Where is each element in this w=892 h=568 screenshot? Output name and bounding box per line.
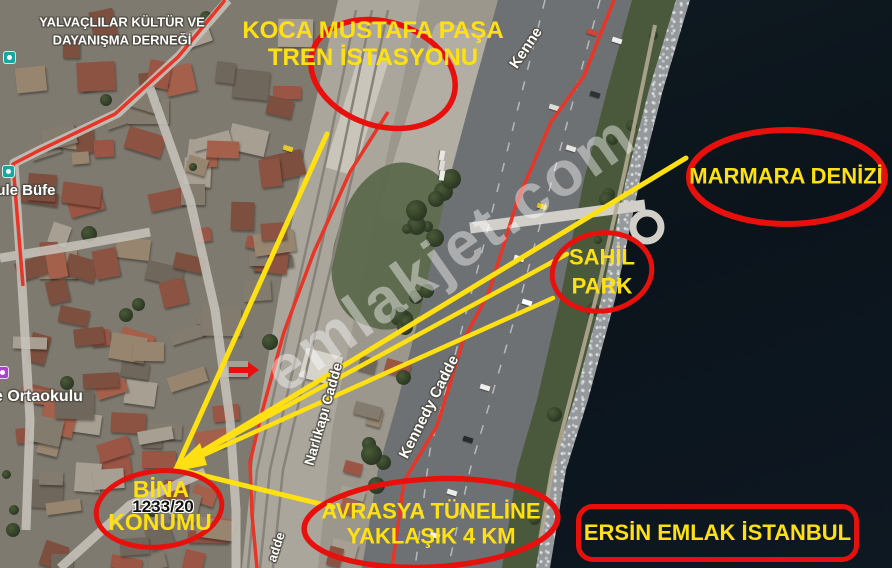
poi-label-association: YALVAÇLILAR KÜLTÜR VE DAYANIŞMA DERNEĞİ (39, 13, 205, 48)
building (258, 158, 282, 188)
building (194, 427, 233, 451)
building (76, 61, 115, 92)
sahil-annotation: SAHİL PARK (569, 243, 635, 300)
building (193, 227, 212, 243)
agency-name: ERSİN EMLAK İSTANBUL (584, 521, 851, 546)
poi-label-association-line2: DAYANIŞMA DERNEĞİ (39, 31, 205, 49)
car (589, 91, 600, 99)
poi-school-icon (0, 366, 9, 379)
building (94, 139, 115, 157)
avrasya-annotation-line2: YAKLAŞIK 4 KM (321, 524, 540, 549)
building (83, 372, 120, 389)
poi-cafe-icon (2, 165, 15, 178)
poi-label-association-line1: YALVAÇLILAR KÜLTÜR VE (39, 13, 205, 31)
station-annotation-line2: TREN İSTASYONU (242, 45, 503, 72)
building (326, 546, 344, 568)
car (462, 436, 473, 444)
building (124, 126, 167, 158)
tree (406, 200, 427, 221)
building (260, 222, 286, 241)
car (282, 145, 293, 153)
building (92, 468, 124, 490)
building (146, 552, 167, 568)
building (231, 202, 255, 231)
building (51, 554, 73, 568)
tree (2, 470, 11, 479)
tree (132, 298, 145, 311)
building (58, 305, 91, 327)
building (343, 460, 363, 476)
building (13, 336, 47, 349)
building (72, 151, 90, 164)
car (479, 384, 490, 392)
building (73, 326, 105, 346)
car (521, 299, 532, 307)
building (123, 379, 157, 407)
building (220, 361, 248, 377)
tree (361, 444, 382, 465)
avrasya-annotation-line1: AVRASYA TÜNELİNE (321, 499, 540, 524)
car (548, 104, 559, 112)
building (120, 360, 150, 380)
tree (9, 505, 19, 515)
tree (119, 308, 133, 322)
building (167, 366, 209, 392)
poi-label-school: e Ortaokulu (0, 388, 83, 406)
marmara-annotation: MARMARA DENİZİ (689, 165, 883, 190)
avrasya-annotation: AVRASYA TÜNELİNE YAKLAŞIK 4 KM (321, 499, 540, 548)
station-annotation: KOCA MUSTAFA PAŞA TREN İSTASYONU (242, 18, 503, 72)
agency-badge: ERSİN EMLAK İSTANBUL (576, 504, 859, 562)
building (169, 324, 205, 345)
building (110, 554, 143, 568)
map-canvas[interactable]: emlakjet.com YALVAÇLILAR KÜLTÜR VE DAYAN… (0, 0, 892, 568)
building (75, 126, 95, 153)
tree (649, 31, 658, 40)
car (586, 29, 597, 37)
car (446, 489, 457, 497)
building (242, 279, 271, 302)
tree (396, 370, 411, 385)
tree (599, 192, 614, 207)
building (133, 342, 164, 362)
poi-label-bufe: kule Büfe (0, 182, 56, 199)
building (39, 471, 63, 486)
building (207, 140, 240, 158)
building (212, 404, 240, 423)
building (181, 184, 205, 205)
tree (368, 477, 385, 494)
building (148, 188, 185, 213)
car (513, 255, 524, 263)
tree (428, 191, 444, 207)
building (158, 278, 188, 309)
tree (81, 226, 97, 242)
car (611, 37, 622, 45)
building (15, 66, 47, 94)
building (215, 61, 236, 84)
building (180, 549, 205, 568)
poi-bufe-icon (3, 51, 16, 64)
sahil-annotation-line1: SAHİL (569, 243, 635, 272)
tree (402, 224, 412, 234)
building (202, 307, 242, 337)
building (119, 537, 149, 556)
tree (586, 303, 599, 316)
building (353, 401, 382, 421)
building (115, 236, 151, 261)
sahil-annotation-line2: PARK (569, 272, 635, 301)
tree (6, 523, 20, 537)
station-annotation-line1: KOCA MUSTAFA PAŞA (242, 18, 503, 45)
tree (547, 407, 562, 422)
tree (100, 94, 112, 106)
building (45, 278, 71, 305)
tree (189, 163, 197, 171)
building (232, 68, 271, 101)
building (142, 451, 176, 468)
parcel-number: 1233/20 (132, 497, 193, 517)
